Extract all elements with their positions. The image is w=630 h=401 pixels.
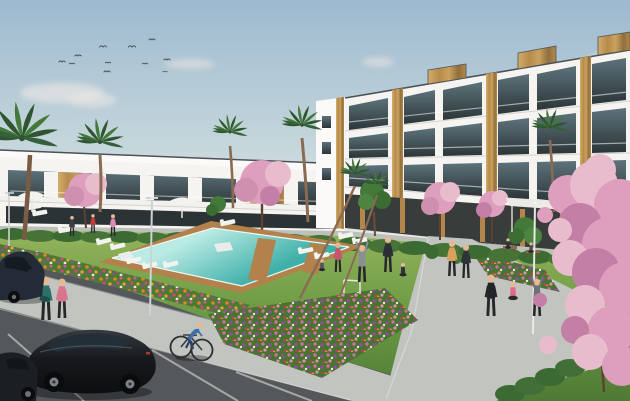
cloud-left-2: [68, 93, 116, 107]
cloud-wisp: [165, 59, 215, 69]
junction-tower: [316, 97, 346, 229]
cloud-tiny: [362, 57, 394, 67]
scene-render: [0, 0, 630, 401]
bush-1: [425, 245, 439, 259]
